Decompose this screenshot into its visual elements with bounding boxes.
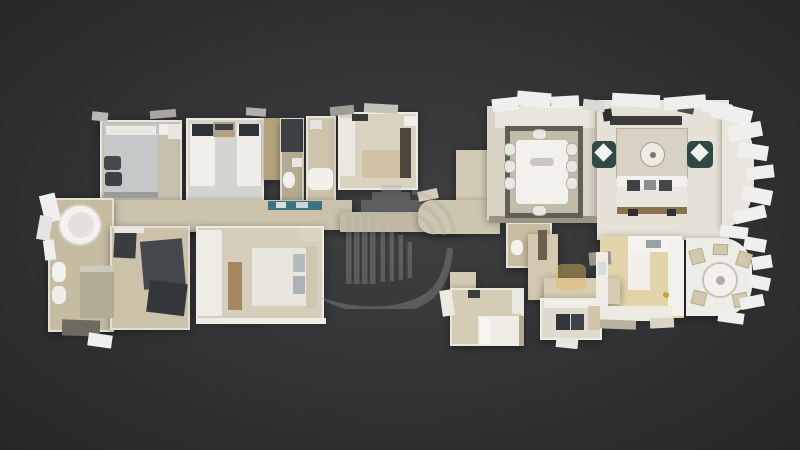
- master-south-wall: [196, 318, 326, 324]
- nook-chair: [713, 244, 729, 256]
- bidet: [52, 286, 66, 304]
- tv-unit: [468, 290, 480, 298]
- bed-pillow-band: [106, 126, 156, 135]
- shower-stall: [80, 266, 114, 318]
- bathroom-1-counter: [281, 119, 303, 152]
- closet-shelf: [114, 226, 144, 233]
- twin-bed-headboard: [239, 124, 259, 136]
- sofa-pillow: [644, 180, 656, 190]
- dining-chair: [532, 129, 547, 140]
- curtain-fragment: [612, 93, 661, 108]
- dining-chair: [566, 177, 578, 190]
- dining-chair: [566, 143, 578, 156]
- maid-bed-edge: [519, 316, 524, 346]
- master-headboard: [306, 246, 317, 308]
- tv-unit: [352, 114, 368, 121]
- wall-fragment: [246, 107, 267, 116]
- wardrobe: [512, 288, 524, 314]
- bathtub: [308, 168, 333, 190]
- warm-light-glow: [556, 264, 586, 290]
- kitchen-counter: [628, 252, 650, 290]
- curtain-fragment: [717, 310, 744, 325]
- bed-blanket: [362, 150, 402, 178]
- stovetop: [646, 240, 661, 248]
- dining-table: [516, 140, 568, 204]
- curtain-fragment: [551, 95, 580, 108]
- hanging-clothes: [146, 280, 188, 316]
- closet-column: [264, 118, 280, 180]
- dining-chair: [504, 177, 516, 190]
- master-pillow: [293, 254, 305, 272]
- vanity-basin: [276, 202, 286, 208]
- bed-headboard: [400, 128, 411, 178]
- bed-footboard: [104, 192, 158, 198]
- wall-fragment: [650, 317, 674, 328]
- laundry-shelf: [588, 306, 600, 330]
- decor-object: [628, 209, 638, 216]
- master-pillow: [293, 276, 305, 294]
- kitchen-sink: [598, 262, 606, 275]
- curtain-fragment: [87, 332, 113, 348]
- tv-wall-unit: [610, 116, 682, 125]
- floorplan-viewport[interactable]: [0, 0, 800, 450]
- tub-basin: [68, 212, 94, 238]
- dining-chair: [566, 160, 578, 173]
- shower-glass: [80, 266, 114, 272]
- armchair-dark: [105, 172, 122, 186]
- wardrobe: [340, 118, 355, 176]
- dryer: [571, 314, 584, 330]
- dining-chair: [504, 143, 516, 156]
- dining-chair: [532, 205, 547, 216]
- nightstand: [404, 116, 416, 126]
- wall-fragment: [600, 319, 636, 329]
- master-bench: [228, 262, 242, 310]
- curtain-fragment: [491, 97, 518, 113]
- hanging-clothes: [113, 231, 136, 258]
- wall-fragment: [150, 109, 177, 119]
- sink: [292, 158, 302, 167]
- toilet: [511, 240, 523, 255]
- maid-bed-pillow: [480, 318, 490, 344]
- decor-object: [667, 209, 676, 216]
- desk-top: [215, 124, 233, 130]
- dining-chair: [504, 160, 516, 173]
- kitchen-counter: [668, 240, 684, 316]
- sofa-pillow: [627, 180, 640, 191]
- dresser: [168, 124, 182, 139]
- wall-fragment: [364, 103, 398, 114]
- floorplan: [0, 0, 800, 450]
- table-centerpiece: [530, 158, 554, 166]
- toilet: [52, 262, 66, 282]
- master-cabinet: [300, 228, 322, 241]
- washing-machine: [556, 314, 570, 330]
- curtain-fragment: [556, 337, 579, 349]
- twin-bed-headboard: [192, 124, 213, 136]
- curtain-fragment: [745, 164, 774, 180]
- wall-fragment: [92, 111, 109, 122]
- toilet: [283, 172, 295, 188]
- master-wardrobe: [198, 230, 222, 316]
- armchair-dark: [104, 156, 121, 170]
- vanity-basin: [296, 202, 308, 208]
- powder-counter: [538, 230, 547, 260]
- table-pedestal: [716, 276, 725, 285]
- curtain-fragment: [43, 239, 56, 260]
- rug-center-dot: [650, 152, 656, 158]
- curtain-fragment: [751, 255, 773, 271]
- sofa-pillow: [659, 180, 672, 191]
- gold-fixture: [663, 292, 669, 298]
- curtain-fragment: [516, 91, 551, 109]
- sink: [310, 120, 322, 129]
